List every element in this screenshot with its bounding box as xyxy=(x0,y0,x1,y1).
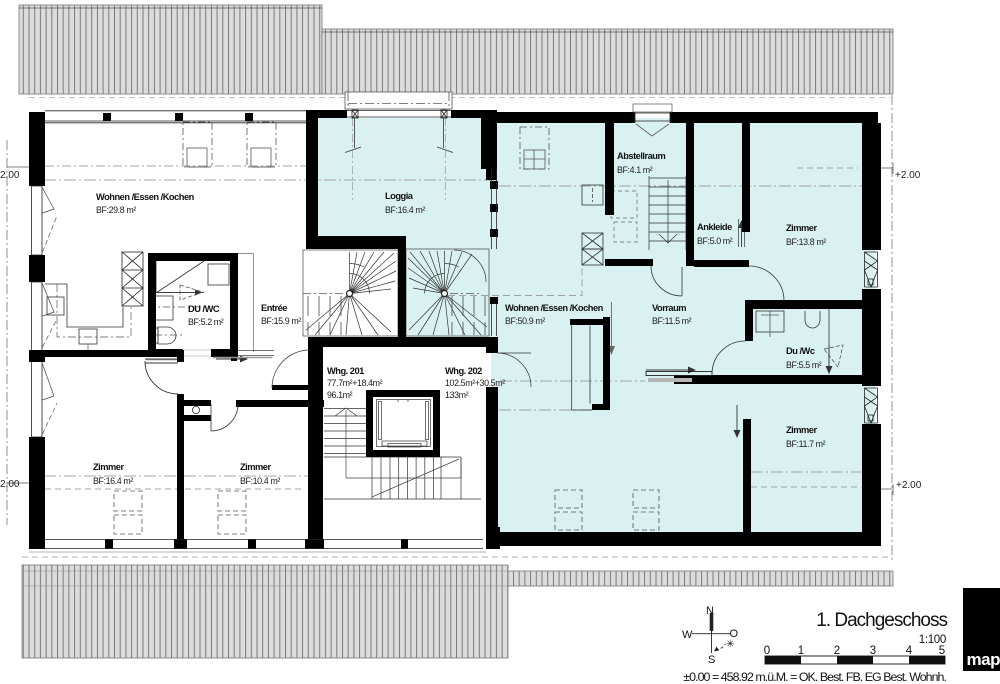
svg-text:133m²: 133m² xyxy=(445,390,469,400)
svg-text:✳: ✳ xyxy=(726,639,734,650)
svg-text:BF:13.8 m²: BF:13.8 m² xyxy=(786,237,826,247)
svg-text:BF:5.2 m²: BF:5.2 m² xyxy=(188,317,224,327)
svg-text:BF:5.5 m²: BF:5.5 m² xyxy=(786,360,822,370)
svg-text:Ankleide: Ankleide xyxy=(697,222,732,232)
svg-text:Zimmer: Zimmer xyxy=(786,425,817,435)
svg-text:Zimmer: Zimmer xyxy=(786,223,817,233)
svg-text:BF:11.5 m²: BF:11.5 m² xyxy=(652,316,692,326)
svg-text:BF:50.9 m²: BF:50.9 m² xyxy=(505,316,545,326)
svg-text:+2.00: +2.00 xyxy=(895,170,921,181)
svg-text:N: N xyxy=(706,605,714,617)
svg-text:96.1m²: 96.1m² xyxy=(327,390,353,400)
svg-text:BF:5.0 m²: BF:5.0 m² xyxy=(697,236,733,246)
svg-text:Abstellraum: Abstellraum xyxy=(617,151,665,161)
svg-text:Loggia: Loggia xyxy=(385,191,414,201)
svg-text:2: 2 xyxy=(834,645,840,657)
svg-text:102.5m²+30.5m²: 102.5m²+30.5m² xyxy=(445,378,505,388)
svg-text:BF:29.8 m²: BF:29.8 m² xyxy=(96,205,136,215)
svg-text:Zimmer: Zimmer xyxy=(240,462,271,472)
svg-text:1. Dachgeschoss: 1. Dachgeschoss xyxy=(816,610,947,631)
svg-text:BF:11.7 m²: BF:11.7 m² xyxy=(786,439,826,449)
svg-text:±0.00 = 458.92 m.ü.M. = OK. Be: ±0.00 = 458.92 m.ü.M. = OK. Best. FB. EG… xyxy=(683,670,946,684)
svg-text:map: map xyxy=(967,650,1000,669)
svg-text:5: 5 xyxy=(939,645,945,657)
svg-text:BF:16.4 m²: BF:16.4 m² xyxy=(93,476,133,486)
svg-text:W: W xyxy=(682,629,693,641)
svg-text:+2.00: +2.00 xyxy=(896,480,922,491)
svg-text:BF:4.1 m²: BF:4.1 m² xyxy=(617,165,653,175)
svg-text:Du /Wc: Du /Wc xyxy=(786,346,815,356)
svg-text:Wohnen /Essen /Kochen: Wohnen /Essen /Kochen xyxy=(96,192,195,202)
svg-text:Whg. 201: Whg. 201 xyxy=(327,366,364,376)
svg-text:2.00: 2.00 xyxy=(0,170,20,181)
svg-text:BF:15.9 m²: BF:15.9 m² xyxy=(261,316,301,326)
svg-text:3: 3 xyxy=(870,645,876,657)
svg-text:Wohnen /Essen /Kochen: Wohnen /Essen /Kochen xyxy=(505,303,604,313)
svg-text:77.7m²+18.4m²: 77.7m²+18.4m² xyxy=(327,378,383,388)
svg-text:4: 4 xyxy=(906,645,913,657)
svg-text:1: 1 xyxy=(798,645,804,657)
svg-text:Whg. 202: Whg. 202 xyxy=(445,366,482,376)
svg-text:2.00: 2.00 xyxy=(0,479,20,490)
svg-text:Vorraum: Vorraum xyxy=(652,303,686,313)
svg-text:S: S xyxy=(708,654,715,666)
svg-text:Zimmer: Zimmer xyxy=(93,462,124,472)
svg-text:BF:10.4 m²: BF:10.4 m² xyxy=(240,476,280,486)
svg-text:BF:16.4 m²: BF:16.4 m² xyxy=(385,205,425,215)
svg-text:Entrée: Entrée xyxy=(261,303,287,313)
svg-text:0: 0 xyxy=(764,645,770,657)
svg-text:DU /WC: DU /WC xyxy=(188,304,220,314)
